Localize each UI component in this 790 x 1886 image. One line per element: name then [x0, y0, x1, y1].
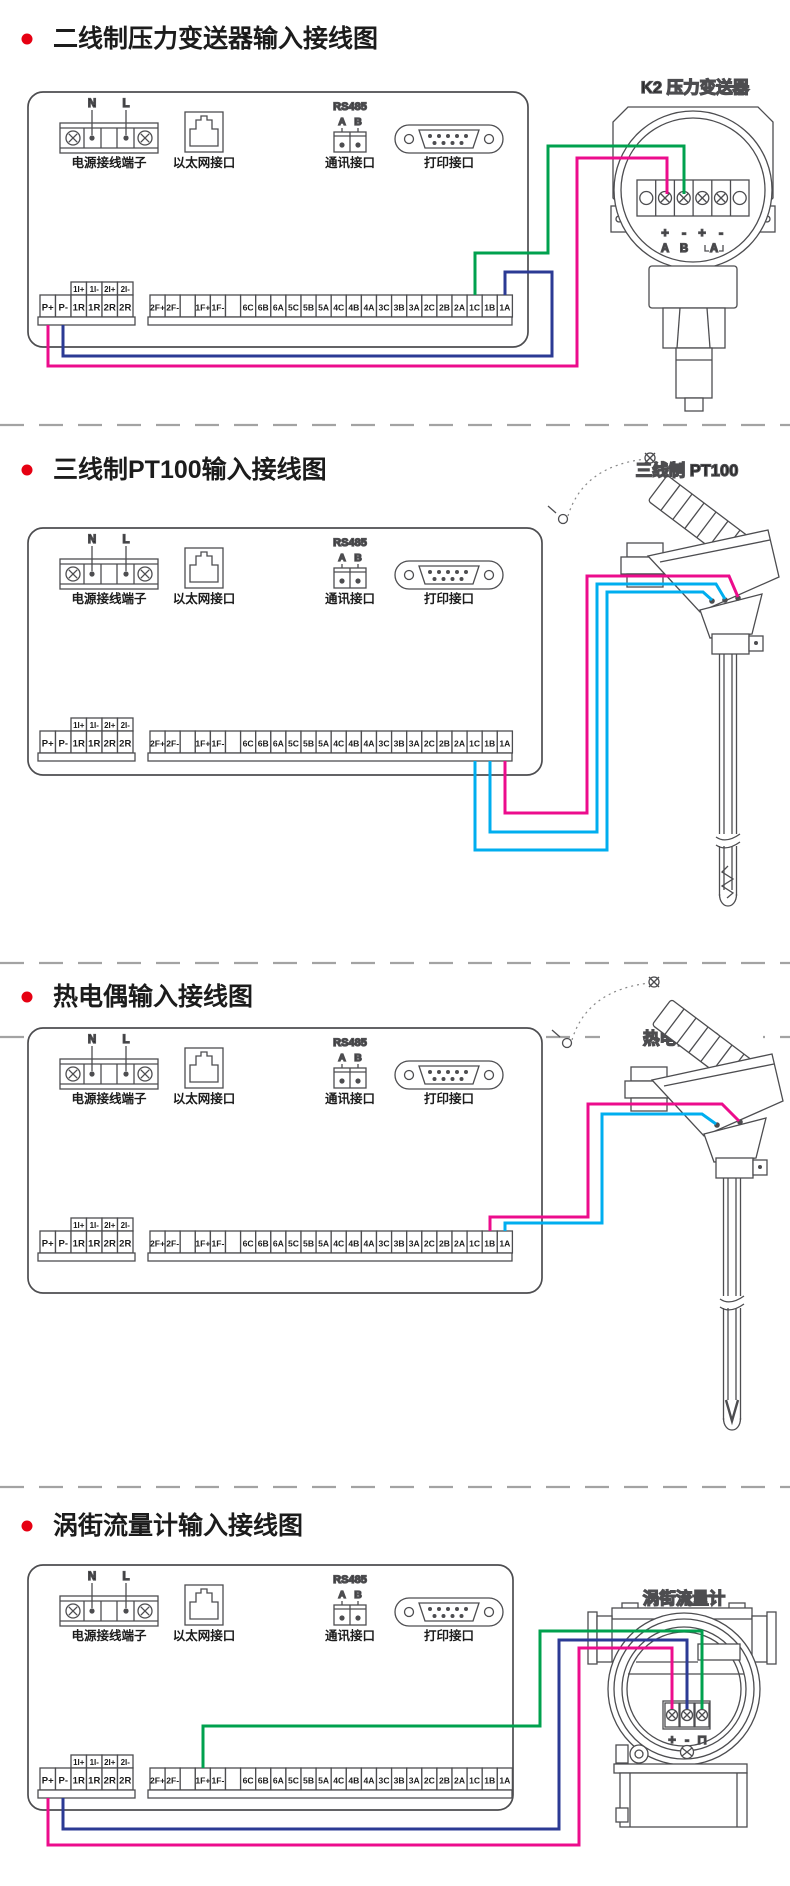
printer-port [395, 561, 503, 589]
terminal-label: 5C [288, 1776, 299, 1786]
terminal-letter: A [661, 243, 669, 255]
section-vortex-flowmeter: 涡街流量计输入接线图 NLRS485AB电源接线端子以太网接口通讯接口打印接口1… [22, 1511, 777, 1845]
terminal-label: P+ [42, 1239, 54, 1250]
terminal-label: 1R [73, 303, 85, 314]
terminal-label: 2A [454, 303, 465, 313]
terminal-label: 1I- [90, 1758, 100, 1767]
terminal-label: 6C [243, 1776, 254, 1786]
printer-port [395, 1061, 503, 1089]
terminal-letter: A [710, 243, 718, 255]
terminal-label: 1F- [212, 1239, 225, 1249]
db9-connector-icon [419, 130, 479, 148]
recorder-panel-group: NLRS485AB电源接线端子以太网接口通讯接口打印接口1I+1I-2I+2I-… [28, 92, 528, 347]
terminal-label: 5C [288, 739, 299, 749]
bullet-icon [22, 465, 33, 476]
terminal-label: 1F+ [195, 1776, 210, 1786]
terminal-label: P- [59, 1776, 69, 1787]
rs485-a-label: A [338, 1052, 346, 1064]
recorder-panel-group: NLRS485AB电源接线端子以太网接口通讯接口打印接口1I+1I-2I+2I-… [28, 1028, 542, 1293]
power-l-label: L [122, 534, 129, 546]
power-n-label: N [88, 98, 96, 110]
terminal-label: P+ [42, 1776, 54, 1787]
terminal-label: 1F+ [195, 739, 210, 749]
terminal-label: 6A [273, 739, 284, 749]
terminal-label: 3B [394, 1776, 405, 1786]
rs485-a-label: A [338, 116, 346, 128]
terminal-label: 4B [348, 303, 359, 313]
section-two-wire-pressure: 二线制压力变送器输入接线图 NLRS485AB电源接线端子以太网接口通讯接口打印… [22, 24, 776, 411]
db9-connector-icon [419, 1603, 479, 1621]
terminal-label: 1F- [212, 739, 225, 749]
rs485-label: RS485 [333, 1037, 367, 1049]
terminal-label: 2R [119, 1239, 131, 1250]
tc-junction-v [726, 1400, 738, 1421]
terminal-sign-pulse: ⊓ [697, 1732, 707, 1747]
rs485-label: RS485 [333, 101, 367, 113]
ethernet-port-label: 以太网接口 [173, 591, 236, 606]
terminal-label: 3B [394, 303, 405, 313]
terminal-label: 3A [409, 303, 420, 313]
terminal-label: 2F- [166, 1239, 179, 1249]
terminal-label: 1R [73, 739, 85, 750]
recorder-panel-group: NLRS485AB电源接线端子以太网接口通讯接口打印接口1I+1I-2I+2I-… [28, 528, 542, 775]
comm-port-label: 通讯接口 [325, 1628, 375, 1643]
terminal-label: 1I- [90, 285, 100, 294]
comm-port-label: 通讯接口 [325, 1091, 375, 1106]
print-port-label: 打印接口 [424, 155, 474, 170]
terminal-label: 6B [258, 739, 269, 749]
terminal-label: 5A [318, 1776, 329, 1786]
terminal-label: 2R [104, 303, 116, 314]
terminal-label: 6B [258, 1776, 269, 1786]
db9-connector-icon [419, 566, 479, 584]
power-l-label: L [122, 1571, 129, 1583]
terminal-label: 2A [454, 1239, 465, 1249]
terminal-label: 2B [439, 1239, 450, 1249]
terminal-sign: - [685, 1732, 689, 1747]
flowmeter-body-shoulder [614, 1764, 747, 1773]
terminal-label: 2R [104, 1776, 116, 1787]
print-port-label: 打印接口 [424, 591, 474, 606]
device-label: K2 压力变送器 [641, 77, 750, 97]
terminal-sign: + [698, 225, 706, 240]
vortex-flowmeter: 涡街流量计 + - ⊓ [588, 1588, 776, 1827]
section-title: 涡街流量计输入接线图 [53, 1511, 303, 1540]
bullet-icon [22, 1521, 33, 1532]
terminal-label: 2R [119, 1776, 131, 1787]
terminal-label: 3A [409, 739, 420, 749]
terminal-label: 5B [303, 1776, 314, 1786]
terminal-label: 4A [363, 1776, 374, 1786]
comm-port-label: 通讯接口 [325, 591, 375, 606]
terminal-label: 3A [409, 1776, 420, 1786]
section-title: 三线制PT100输入接线图 [53, 455, 327, 484]
power-terminal-label: 电源接线端子 [71, 591, 147, 606]
terminal-label: 5A [318, 739, 329, 749]
terminal-sign: + [668, 1732, 676, 1747]
terminal-label: 5B [303, 739, 314, 749]
strip-rail [38, 1790, 135, 1798]
terminal-label: 4B [348, 1776, 359, 1786]
power-n-label: N [88, 1034, 96, 1046]
rs485-b-label: B [354, 116, 362, 128]
terminal-label: 2C [424, 303, 435, 313]
terminal-label: 2F- [166, 1776, 179, 1786]
terminal-label: P- [59, 1239, 69, 1250]
terminal-label: 1R [88, 739, 100, 750]
terminal-label: 1I+ [73, 285, 85, 294]
terminal-label: 2F+ [150, 1776, 165, 1786]
ethernet-port [185, 112, 223, 152]
transmitter-flange [649, 266, 737, 308]
probe-block [712, 634, 749, 654]
terminal-label: 4C [333, 1239, 344, 1249]
terminal-label: 5C [288, 303, 299, 313]
terminal-label: 1A [499, 1776, 510, 1786]
terminal-label: 1C [469, 1776, 480, 1786]
terminal-label: 1F- [212, 303, 225, 313]
transmitter-hex-nut [663, 308, 725, 348]
terminal-label: 2I- [121, 721, 131, 730]
terminal-label: 4C [333, 303, 344, 313]
terminal-label: 6C [243, 1239, 254, 1249]
rs485-label: RS485 [333, 537, 367, 549]
section-thermocouple: 热电偶输入接线图 NLRS485AB电源接线端子以太网接口通讯接口打印接口1I+… [22, 977, 784, 1430]
terminal-cell [226, 1768, 241, 1790]
terminal-label: 2R [119, 739, 131, 750]
terminal-label: 1A [499, 1239, 510, 1249]
terminal-label: P- [59, 739, 69, 750]
probe-head-assembly [548, 453, 779, 654]
terminal-label: 1F+ [195, 1239, 210, 1249]
terminal-cell [180, 1231, 195, 1253]
cap-screw-icon [559, 515, 568, 524]
ethernet-port [185, 1048, 223, 1088]
bullet-icon [22, 992, 33, 1003]
terminal-letter: B [680, 243, 688, 255]
pt100-rod [712, 654, 744, 906]
terminal-label: 1C [469, 1239, 480, 1249]
terminal-label: 2I- [121, 1221, 131, 1230]
power-l-label: L [122, 1034, 129, 1046]
terminal-label: 2F+ [150, 303, 165, 313]
ethernet-port [185, 548, 223, 588]
rs485-b-label: B [354, 1589, 362, 1601]
section-pt100: 三线制PT100输入接线图 NLRS485AB电源接线端子以太网接口通讯接口打印… [22, 453, 780, 906]
terminal-label: 6A [273, 1239, 284, 1249]
rs485-a-label: A [338, 552, 346, 564]
ethernet-port-label: 以太网接口 [173, 1628, 236, 1643]
terminal-label: 4C [333, 1776, 344, 1786]
terminal-label: 3A [409, 1239, 420, 1249]
terminal-label: 1A [499, 739, 510, 749]
terminal-label: 6C [243, 739, 254, 749]
terminal-label: P+ [42, 739, 54, 750]
power-terminal-label: 电源接线端子 [71, 1628, 147, 1643]
terminal-label: 2A [454, 1776, 465, 1786]
terminal-label: 1I+ [73, 1221, 85, 1230]
terminal-label: P+ [42, 303, 54, 314]
tc-rod [716, 1178, 748, 1430]
terminal-label: 5B [303, 303, 314, 313]
terminal-label: 6A [273, 303, 284, 313]
terminal-label: 2F- [166, 303, 179, 313]
terminal-label: 2R [119, 303, 131, 314]
wiring-diagram-page: 二线制压力变送器输入接线图 NLRS485AB电源接线端子以太网接口通讯接口打印… [0, 0, 790, 1886]
terminal-label: 4A [363, 303, 374, 313]
rs485-b-label: B [354, 552, 362, 564]
terminal-label: 6B [258, 1239, 269, 1249]
terminal-cell [226, 1231, 241, 1253]
terminal-label: 2I- [121, 285, 131, 294]
power-terminal-label: 电源接线端子 [71, 1091, 147, 1106]
terminal-label: 3B [394, 739, 405, 749]
terminal-label: 1C [469, 303, 480, 313]
bullet-icon [22, 34, 33, 45]
power-l-label: L [122, 98, 129, 110]
section-title: 热电偶输入接线图 [53, 982, 253, 1011]
terminal-label: P- [59, 303, 69, 314]
terminal-label: 3C [379, 1239, 390, 1249]
terminal-label: 2I+ [104, 721, 116, 730]
flowmeter-left-flange [588, 1612, 597, 1664]
printer-port [395, 125, 503, 153]
recorder-panel-group: NLRS485AB电源接线端子以太网接口通讯接口打印接口1I+1I-2I+2I-… [28, 1565, 513, 1810]
terminal-label: 1R [88, 303, 100, 314]
terminal-label: 1C [469, 739, 480, 749]
terminal-sign: - [682, 225, 686, 240]
terminal-label: 5C [288, 1239, 299, 1249]
terminal-label: 4A [363, 739, 374, 749]
printer-port [395, 1598, 503, 1626]
terminal-label: 1B [484, 739, 495, 749]
terminal-label: 1A [499, 303, 510, 313]
terminal-label: 5A [318, 303, 329, 313]
pressure-transmitter: K2 压力变送器 + - + - A B A [611, 77, 775, 411]
terminal-label: 2B [439, 739, 450, 749]
terminal-label: 4C [333, 739, 344, 749]
terminal-label: 2A [454, 739, 465, 749]
rod-tip [720, 894, 737, 906]
cap-chain-dotted-arc [568, 459, 646, 516]
terminal-cell [180, 731, 195, 753]
terminal-label: 2C [424, 1239, 435, 1249]
terminal-label: 6A [273, 1776, 284, 1786]
device-label: 涡街流量计 [643, 1588, 726, 1608]
ethernet-port-label: 以太网接口 [173, 1091, 236, 1106]
strip-rail [148, 753, 512, 761]
ethernet-port-label: 以太网接口 [173, 155, 236, 170]
comm-port-label: 通讯接口 [325, 155, 375, 170]
terminal-label: 1B [484, 303, 495, 313]
terminal-label: 5A [318, 1239, 329, 1249]
terminal-sign: + [661, 225, 669, 240]
terminal-label: 1F- [212, 1776, 225, 1786]
terminal-label: 2R [104, 739, 116, 750]
terminal-label: 2C [424, 1776, 435, 1786]
rs485-b-label: B [354, 1052, 362, 1064]
rs485-label: RS485 [333, 1574, 367, 1586]
strip-rail [148, 1790, 512, 1798]
power-n-label: N [88, 534, 96, 546]
terminal-sign: - [719, 225, 723, 240]
strip-rail [38, 317, 135, 325]
terminal-label: 1I+ [73, 1758, 85, 1767]
transmitter-stem [676, 348, 712, 398]
rs485-a-label: A [338, 1589, 346, 1601]
transmitter-foot [685, 398, 703, 411]
terminal-label: 6C [243, 303, 254, 313]
terminal-label: 2I- [121, 1758, 131, 1767]
terminal-label: 1B [484, 1776, 495, 1786]
terminal-label: 4B [348, 1239, 359, 1249]
terminal-cell [226, 731, 241, 753]
power-n-label: N [88, 1571, 96, 1583]
section-title: 二线制压力变送器输入接线图 [53, 24, 378, 53]
terminal-label: 1F+ [195, 303, 210, 313]
terminal-cell [180, 1768, 195, 1790]
strip-rail [38, 1253, 135, 1261]
strip-rail [148, 1253, 512, 1261]
terminal-label: 3B [394, 1239, 405, 1249]
wiring-diagram-svg: 二线制压力变送器输入接线图 NLRS485AB电源接线端子以太网接口通讯接口打印… [0, 0, 790, 1886]
terminal-label: 1R [88, 1239, 100, 1250]
strip-rail [148, 317, 512, 325]
terminal-label: 1I- [90, 721, 100, 730]
terminal-label: 2B [439, 1776, 450, 1786]
ethernet-port [185, 1585, 223, 1625]
print-port-label: 打印接口 [424, 1091, 474, 1106]
terminal-label: 1R [73, 1776, 85, 1787]
terminal-label: 1B [484, 1239, 495, 1249]
terminal-label: 1I+ [73, 721, 85, 730]
power-terminal-label: 电源接线端子 [71, 155, 147, 170]
terminal-label: 3C [379, 303, 390, 313]
terminal-label: 1R [73, 1239, 85, 1250]
flowmeter-right-flange [752, 1616, 767, 1662]
terminal-label: 3C [379, 739, 390, 749]
db9-connector-icon [419, 1066, 479, 1084]
print-port-label: 打印接口 [424, 1628, 474, 1643]
strip-rail [38, 753, 135, 761]
terminal-label: 1I- [90, 1221, 100, 1230]
terminal-label: 2C [424, 739, 435, 749]
terminal-label: 4A [363, 1239, 374, 1249]
terminal-label: 2I+ [104, 1758, 116, 1767]
terminal-label: 3C [379, 1776, 390, 1786]
terminal-label: 2R [104, 1239, 116, 1250]
terminal-label: 4B [348, 739, 359, 749]
terminal-cell [180, 295, 195, 317]
terminal-label: 1R [88, 1776, 100, 1787]
pt100-probe: 三线制 PT100 [548, 453, 779, 906]
terminal-cell [226, 295, 241, 317]
terminal-label: 2I+ [104, 1221, 116, 1230]
terminal-label: 2I+ [104, 285, 116, 294]
flowmeter-body [620, 1773, 747, 1827]
terminal-label: 2F- [166, 739, 179, 749]
terminal-label: 2F+ [150, 739, 165, 749]
terminal-label: 2F+ [150, 1239, 165, 1249]
terminal-label: 6B [258, 303, 269, 313]
terminal-label: 2B [439, 303, 450, 313]
terminal-label: 5B [303, 1239, 314, 1249]
